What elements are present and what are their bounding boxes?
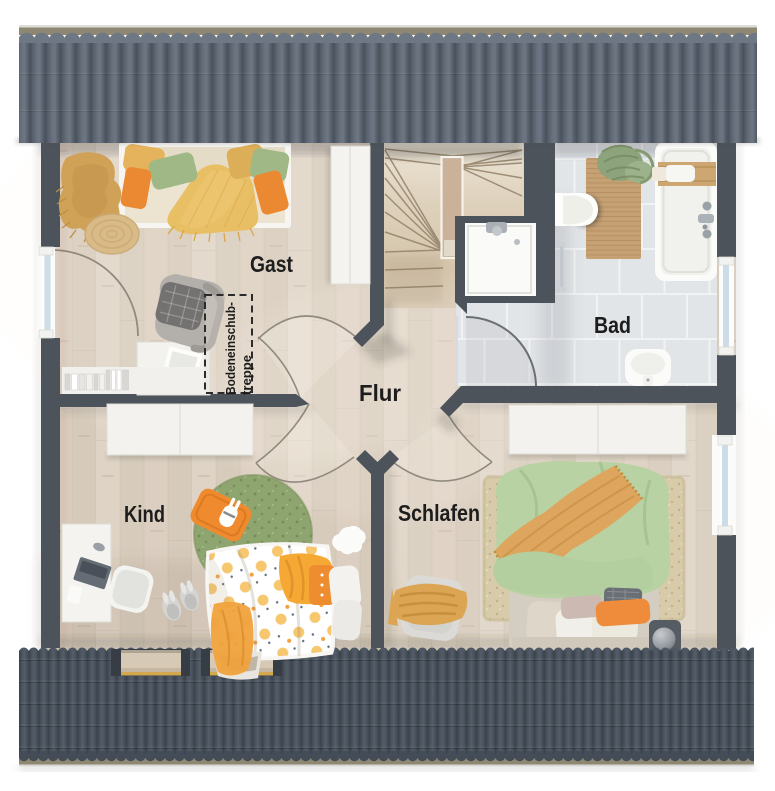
svg-text:treppe: treppe — [240, 355, 254, 395]
svg-text:Schlafen: Schlafen — [398, 500, 480, 526]
svg-text:Bodeneinschub-: Bodeneinschub- — [224, 302, 238, 395]
svg-text:Gast: Gast — [250, 251, 293, 277]
svg-text:Flur: Flur — [359, 380, 401, 406]
svg-text:Bad: Bad — [594, 312, 631, 338]
svg-text:Kind: Kind — [124, 501, 165, 527]
